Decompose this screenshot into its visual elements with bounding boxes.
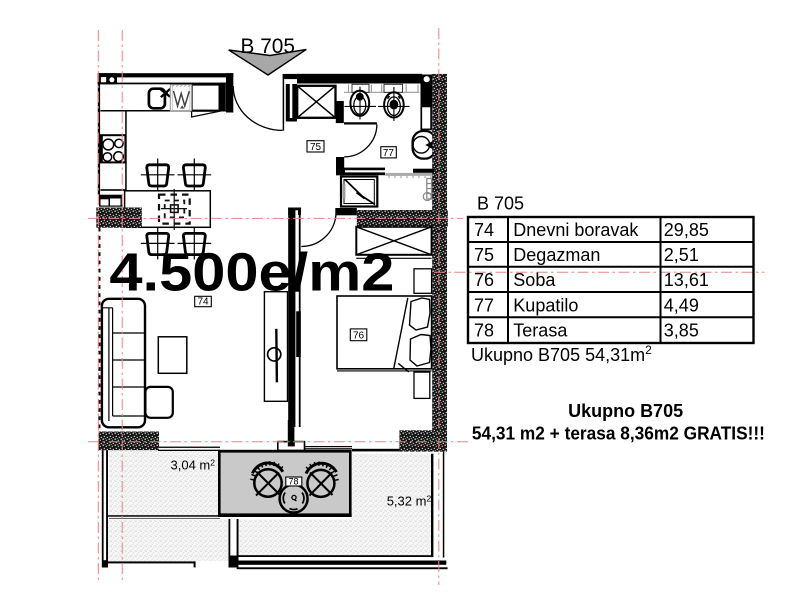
svg-text:76: 76 (474, 270, 494, 290)
svg-text:74: 74 (474, 220, 494, 240)
svg-text:78: 78 (289, 476, 299, 486)
svg-text:Ukupno B705: Ukupno B705 (568, 401, 683, 421)
svg-text:B 705: B 705 (477, 194, 524, 214)
svg-text:B 705: B 705 (241, 34, 296, 58)
svg-text:77: 77 (474, 295, 494, 315)
svg-text:2,51: 2,51 (664, 245, 699, 265)
svg-text:Ukupno B705 54,31m2: Ukupno B705 54,31m2 (471, 343, 652, 365)
svg-text:Degazman: Degazman (513, 245, 600, 265)
svg-text:13,61: 13,61 (664, 270, 709, 290)
svg-text:Kupatilo: Kupatilo (513, 295, 578, 315)
svg-text:3,85: 3,85 (664, 321, 699, 341)
svg-text:78: 78 (474, 321, 494, 341)
svg-text:3,04 m2: 3,04 m2 (171, 457, 216, 472)
svg-text:5,32 m2: 5,32 m2 (387, 494, 432, 509)
svg-text:29,85: 29,85 (664, 220, 709, 240)
svg-text:4,49: 4,49 (664, 295, 699, 315)
svg-text:77: 77 (383, 148, 395, 159)
svg-text:54,31 m2 + terasa 8,36m2 GRATI: 54,31 m2 + terasa 8,36m2 GRATIS!!! (472, 423, 765, 444)
svg-text:Terasa: Terasa (513, 321, 568, 341)
svg-text:Dnevni boravak: Dnevni boravak (513, 220, 639, 240)
svg-text:74: 74 (198, 297, 210, 308)
svg-text:75: 75 (310, 142, 322, 153)
svg-text:Soba: Soba (513, 270, 556, 290)
svg-text:4.500e/m2: 4.500e/m2 (109, 243, 394, 303)
svg-text:76: 76 (353, 330, 365, 341)
svg-text:75: 75 (474, 245, 494, 265)
